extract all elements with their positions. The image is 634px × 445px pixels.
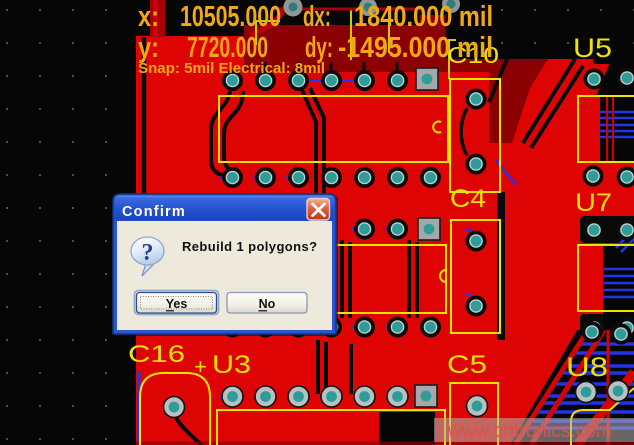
svg-text:No: No — [259, 297, 276, 311]
svg-text:www.cntronics.com: www.cntronics.com — [447, 419, 612, 442]
svg-text:Confirm: Confirm — [122, 204, 186, 220]
svg-text:dx:: dx: — [303, 1, 331, 33]
svg-text:10505.000: 10505.000 — [180, 1, 281, 33]
svg-text:U3: U3 — [212, 351, 251, 379]
svg-text:U7: U7 — [575, 189, 612, 217]
svg-text:Yes: Yes — [166, 297, 188, 311]
svg-text:C5: C5 — [447, 351, 487, 379]
svg-text:x:: x: — [138, 1, 159, 33]
svg-text:U5: U5 — [573, 33, 612, 63]
svg-text:+: + — [194, 354, 207, 379]
svg-text:1840.000 mil: 1840.000 mil — [354, 1, 493, 33]
svg-text:C4: C4 — [450, 185, 486, 213]
svg-text:C16: C16 — [128, 341, 185, 368]
svg-text:?: ? — [142, 240, 154, 266]
svg-text:U8: U8 — [566, 352, 608, 382]
svg-text:-1495.000 mil: -1495.000 mil — [338, 32, 493, 64]
svg-text:Snap: 5mil Electrical: 8mil: Snap: 5mil Electrical: 8mil — [138, 60, 325, 77]
svg-text:Rebuild 1 polygons?: Rebuild 1 polygons? — [182, 239, 317, 254]
